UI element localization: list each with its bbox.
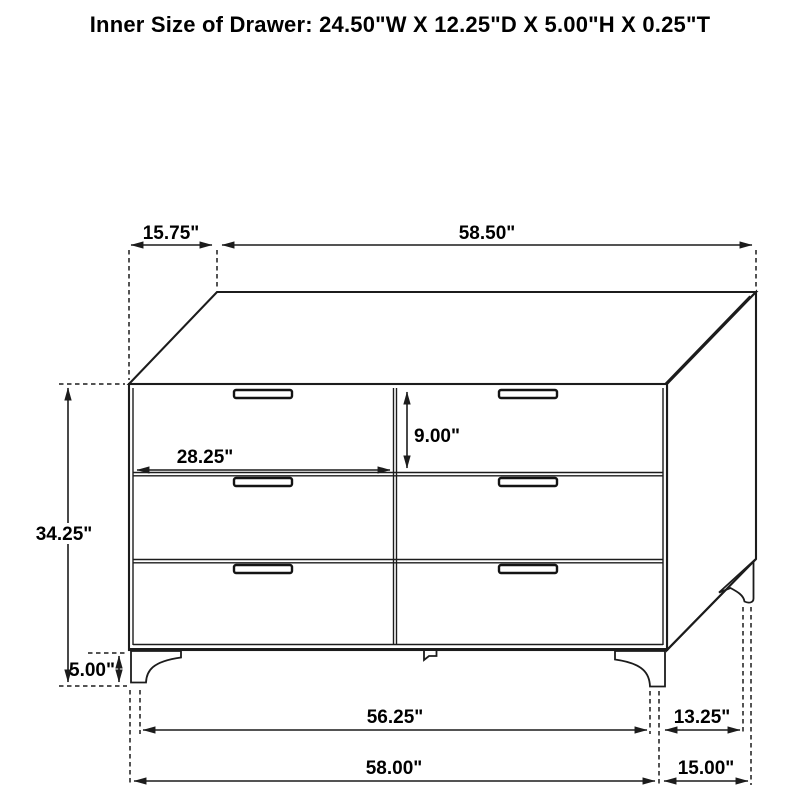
dresser-front-face <box>129 384 667 650</box>
drawer-handle <box>499 478 557 486</box>
dim-leg-height: 5.00" <box>69 656 119 682</box>
diagram-canvas: 15.75" 58.50" 34.25" 5.00" 28.25" 9.00" … <box>0 0 800 800</box>
drawer-handle <box>234 478 292 486</box>
dim-top-depth: 15.75" <box>131 223 212 245</box>
dim-overall-height: 34.25" <box>33 388 96 682</box>
dim-base-width: 58.00" <box>134 758 655 781</box>
dim-base-inner-depth: 13.25" <box>665 707 740 730</box>
dimension-label: 34.25" <box>36 524 93 545</box>
center-support <box>424 651 437 660</box>
drawer-handle <box>499 565 557 573</box>
dim-base-depth: 15.00" <box>664 758 748 781</box>
dimension-label: 28.25" <box>177 447 234 468</box>
dimension-label: 56.25" <box>367 707 424 728</box>
dimension-label: 58.50" <box>459 223 516 244</box>
dimension-label: 15.00" <box>678 758 735 779</box>
front-left-leg <box>131 651 181 683</box>
dim-base-inner-width: 56.25" <box>143 707 647 730</box>
dimension-label: 9.00" <box>414 426 460 447</box>
front-right-leg <box>615 651 665 687</box>
dimension-label: 5.00" <box>69 660 115 681</box>
dimension-label: 58.00" <box>366 758 423 779</box>
dimension-label: 13.25" <box>674 707 731 728</box>
drawer-handle <box>234 565 292 573</box>
dim-top-width: 58.50" <box>222 223 752 245</box>
drawer-handle <box>234 390 292 398</box>
dresser-dimension-diagram: Inner Size of Drawer: 24.50"W X 12.25"D … <box>0 0 800 800</box>
dresser-top-face <box>129 292 756 384</box>
drawer-handle <box>499 390 557 398</box>
dimension-label: 15.75" <box>143 223 200 244</box>
dresser <box>129 292 756 687</box>
